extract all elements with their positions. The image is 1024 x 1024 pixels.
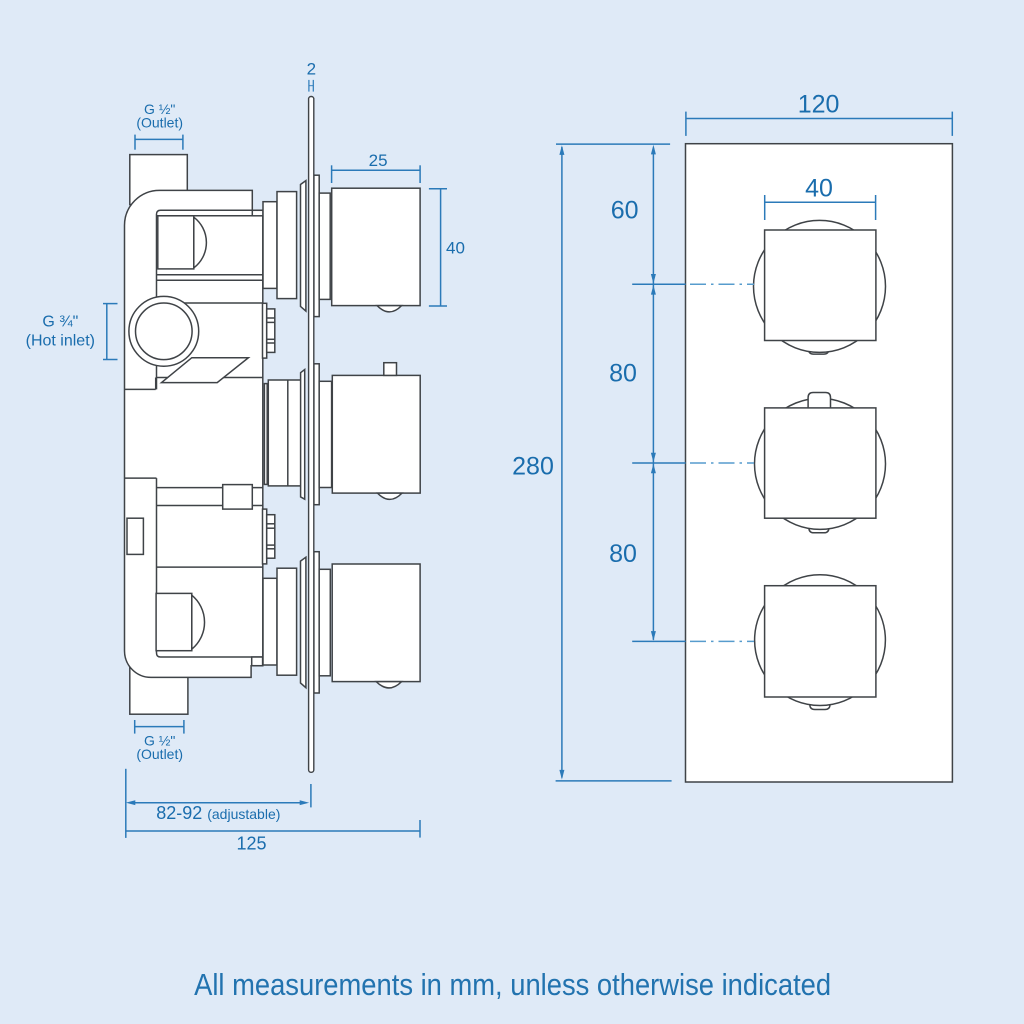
svg-text:82-92 (adjustable): 82-92 (adjustable) (156, 803, 280, 823)
svg-text:All measurements in mm, unless: All measurements in mm, unless otherwise… (194, 967, 831, 1002)
svg-text:80: 80 (609, 540, 637, 568)
svg-text:G ¾": G ¾" (42, 314, 78, 331)
svg-text:(Outlet): (Outlet) (136, 746, 183, 762)
svg-text:25: 25 (369, 151, 388, 170)
svg-text:120: 120 (798, 91, 840, 119)
svg-text:2: 2 (307, 60, 316, 79)
svg-text:(Hot inlet): (Hot inlet) (26, 333, 95, 350)
svg-text:(Outlet): (Outlet) (136, 114, 183, 130)
svg-text:280: 280 (512, 453, 554, 481)
svg-text:40: 40 (805, 175, 833, 203)
svg-text:60: 60 (611, 197, 639, 225)
svg-text:40: 40 (446, 238, 465, 257)
svg-text:80: 80 (609, 360, 637, 388)
svg-text:125: 125 (236, 833, 266, 853)
